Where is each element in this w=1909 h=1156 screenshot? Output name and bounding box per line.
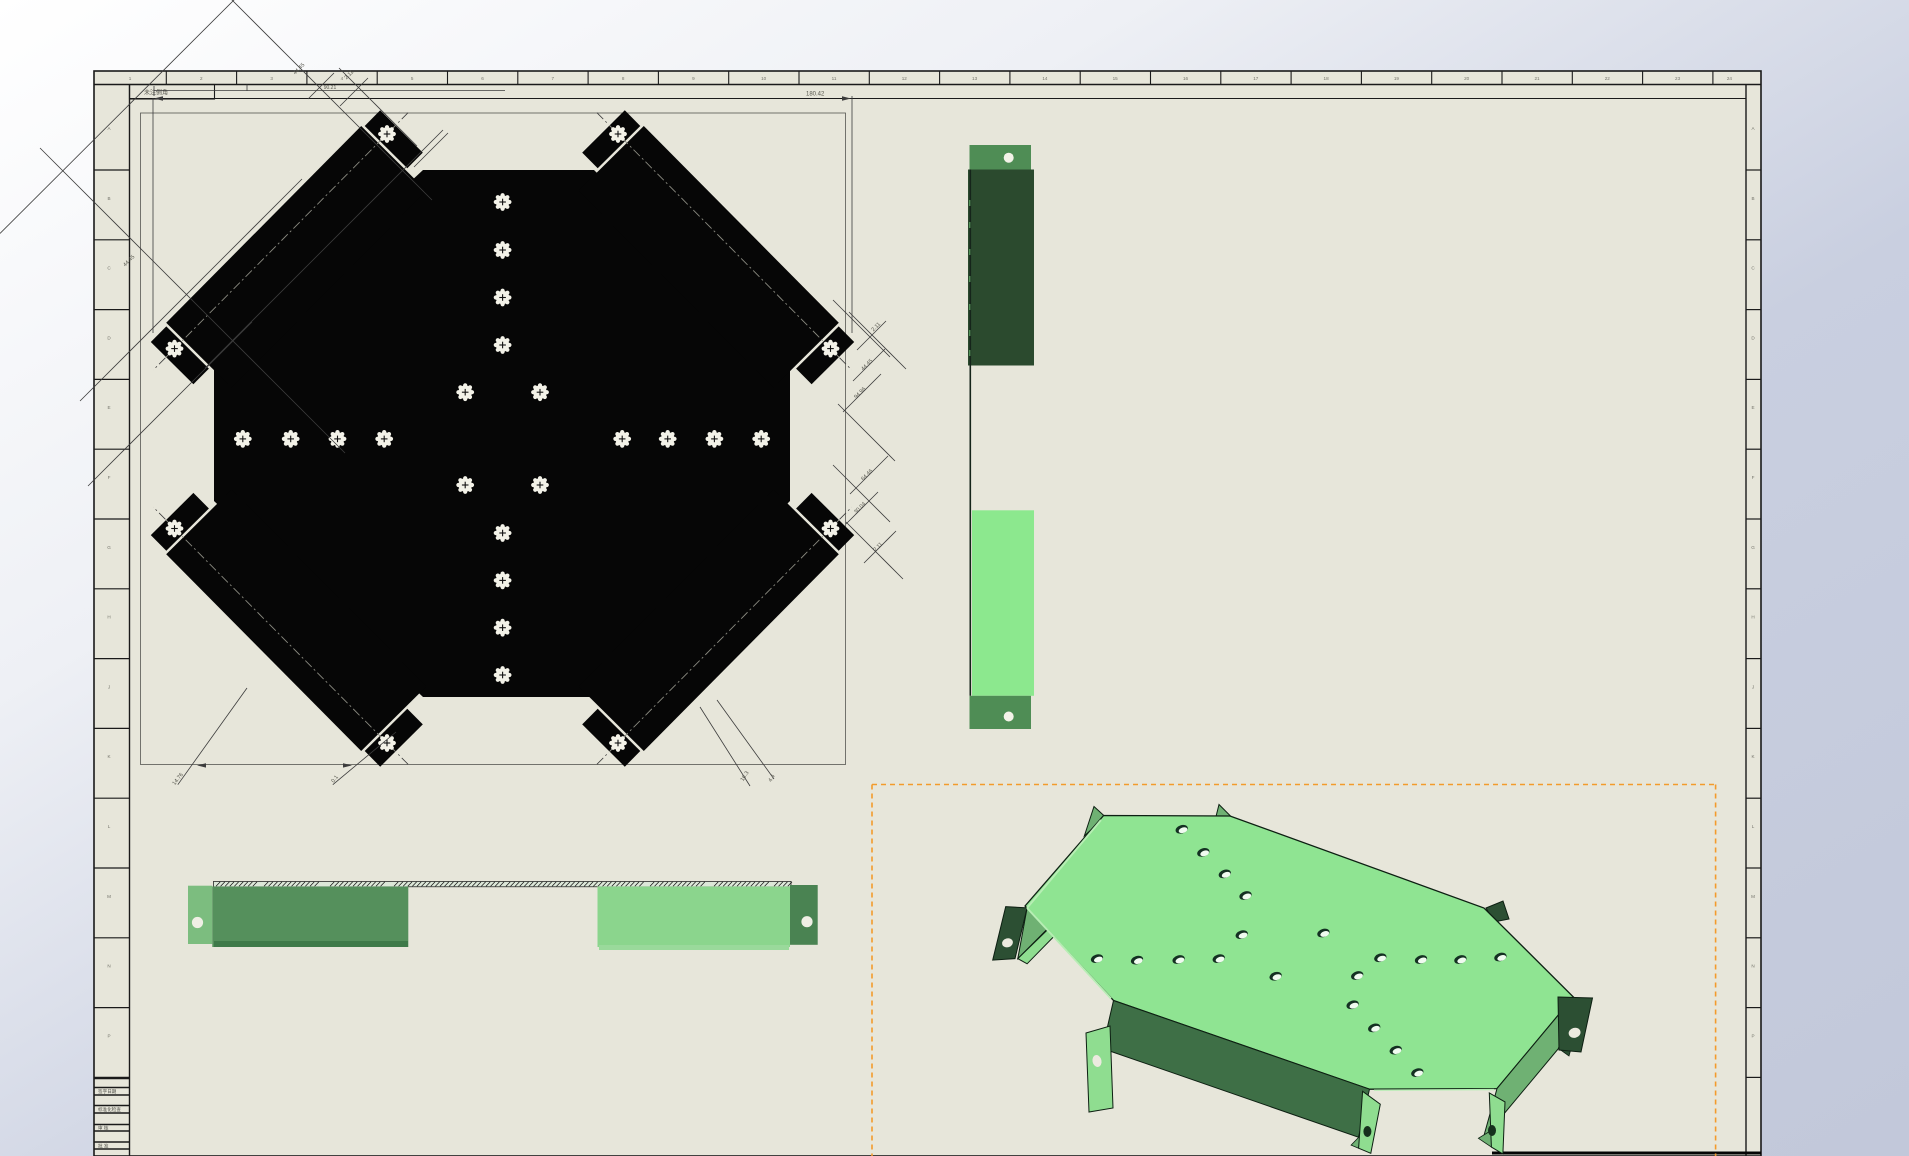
svg-text:180.42: 180.42 (806, 92, 825, 98)
svg-text:审 核: 审 核 (98, 1125, 109, 1132)
svg-text:11: 11 (832, 76, 837, 81)
svg-text:N: N (107, 964, 110, 969)
svg-text:M: M (107, 894, 111, 899)
svg-text:15: 15 (1113, 76, 1119, 81)
svg-text:M: M (1751, 894, 1755, 899)
svg-text:90.21: 90.21 (324, 85, 337, 91)
svg-text:E: E (1751, 405, 1754, 410)
svg-text:P: P (1751, 1033, 1754, 1038)
svg-text:标准化检查: 标准化检查 (98, 1106, 121, 1113)
svg-text:批 准: 批 准 (98, 1143, 109, 1150)
svg-text:1: 1 (129, 76, 132, 81)
svg-text:17: 17 (1253, 76, 1259, 81)
svg-text:P: P (107, 1033, 110, 1038)
svg-text:19: 19 (1394, 76, 1400, 81)
svg-text:未注倒角: 未注倒角 (144, 89, 168, 97)
svg-text:10: 10 (761, 76, 767, 81)
svg-text:18: 18 (1324, 76, 1330, 81)
svg-text:3: 3 (270, 76, 273, 81)
svg-text:24: 24 (1727, 76, 1733, 81)
svg-text:J: J (108, 684, 110, 689)
svg-text:23: 23 (1675, 76, 1681, 81)
svg-text:21: 21 (1534, 76, 1540, 81)
svg-text:F: F (108, 475, 111, 480)
svg-text:G: G (107, 545, 111, 550)
svg-text:16: 16 (1183, 76, 1189, 81)
svg-text:H: H (1751, 615, 1754, 620)
svg-text:L: L (1752, 824, 1755, 829)
svg-text:20: 20 (1464, 76, 1470, 81)
svg-text:B: B (107, 196, 110, 201)
svg-text:J: J (1752, 684, 1754, 689)
svg-text:5: 5 (411, 76, 414, 81)
svg-text:2: 2 (200, 76, 203, 81)
svg-text:8: 8 (622, 76, 625, 81)
svg-text:6: 6 (481, 76, 484, 81)
svg-text:9: 9 (692, 76, 695, 81)
svg-text:B: B (1751, 196, 1754, 201)
svg-text:7: 7 (552, 76, 555, 81)
svg-text:F: F (1752, 475, 1755, 480)
svg-text:签字日期: 签字日期 (98, 1088, 117, 1095)
svg-text:N: N (1751, 964, 1754, 969)
svg-text:13: 13 (972, 76, 978, 81)
svg-text:H: H (107, 615, 110, 620)
svg-text:12: 12 (902, 76, 908, 81)
svg-text:14: 14 (1042, 76, 1048, 81)
svg-text:22: 22 (1605, 76, 1611, 81)
svg-text:L: L (108, 824, 111, 829)
svg-text:E: E (107, 405, 110, 410)
svg-text:G: G (1751, 545, 1755, 550)
